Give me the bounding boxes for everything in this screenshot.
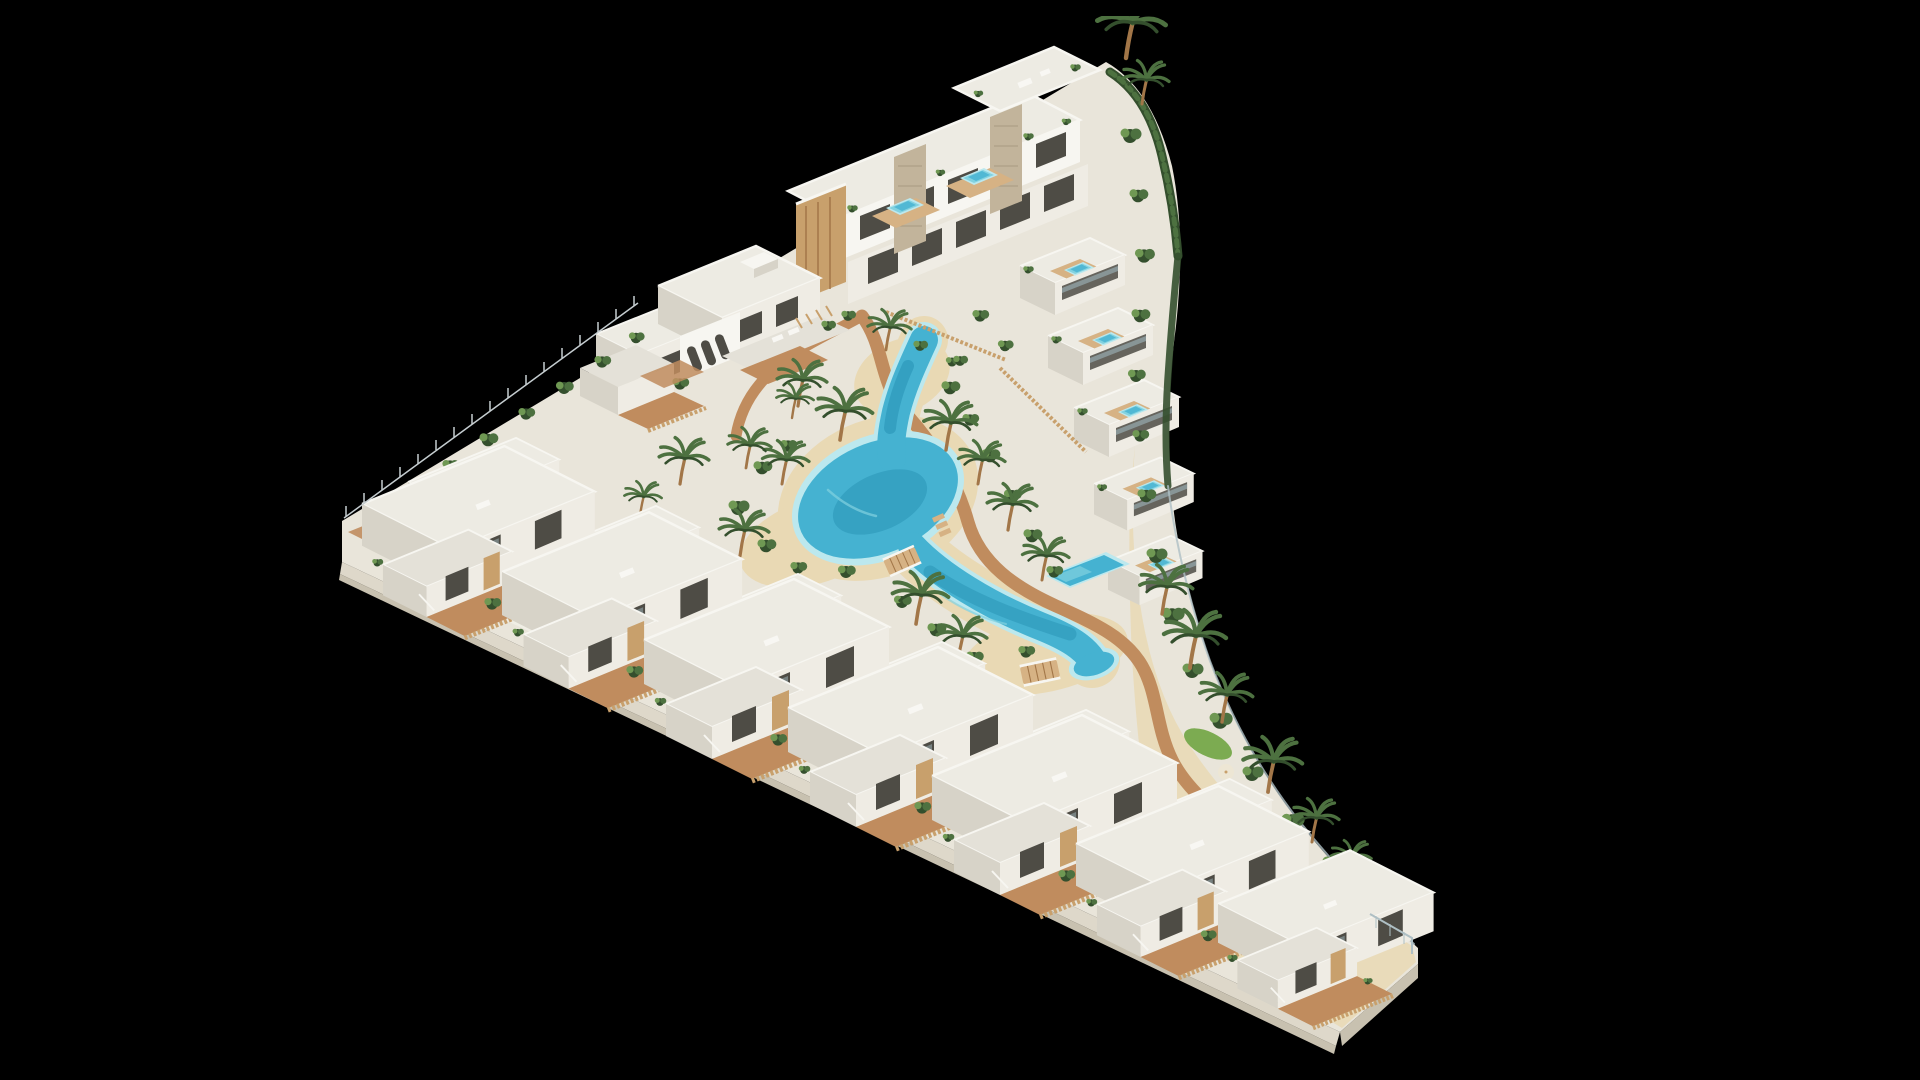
parasol xyxy=(1218,764,1234,780)
palm-tree xyxy=(1097,16,1165,58)
render-canvas xyxy=(40,16,1920,1080)
stone-tower xyxy=(990,104,1022,214)
masterplan-render xyxy=(40,16,1920,1080)
